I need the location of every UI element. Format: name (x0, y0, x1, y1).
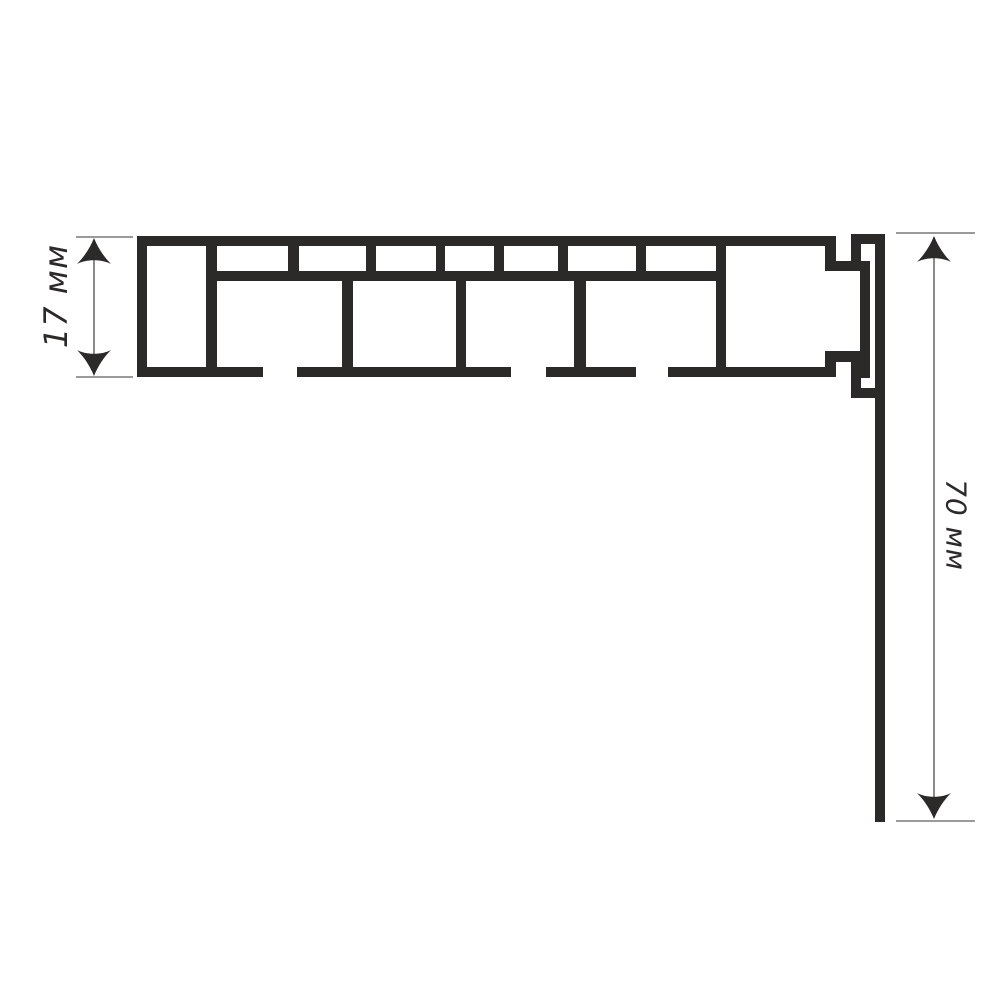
arrowhead-down-apron-drop (917, 793, 951, 819)
dimension-label-apron-drop: 70 мм (940, 479, 973, 571)
dimension-lines (0, 0, 1000, 1000)
arrowhead-down-profile-height (77, 350, 111, 376)
arrowhead-up-profile-height (77, 238, 111, 264)
dimension-label-profile-height: 17 мм (37, 244, 75, 348)
arrowhead-up-apron-drop (917, 236, 951, 262)
diagram-canvas: 17 мм 70 мм (0, 0, 1000, 1000)
